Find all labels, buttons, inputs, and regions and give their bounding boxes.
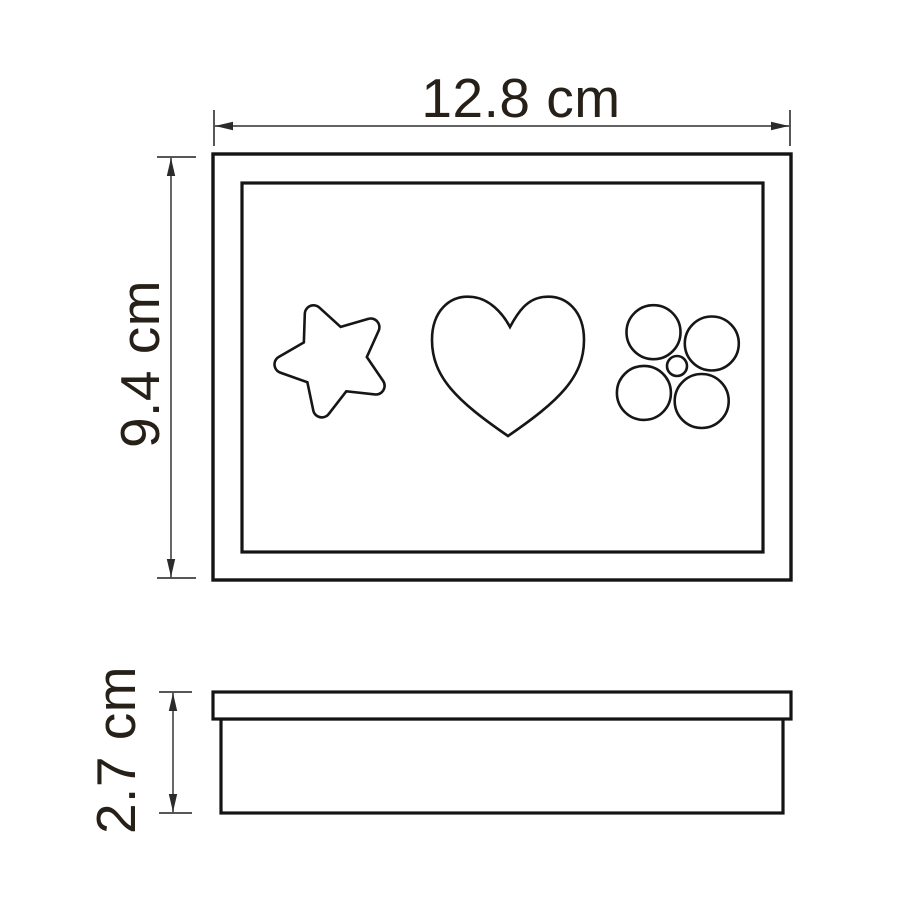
depth-dimension: 2.7 cm bbox=[85, 666, 192, 834]
technical-drawing-page: 12.8 cm 9.4 cm 2.7 cm bbox=[0, 0, 900, 900]
width-dimension: 12.8 cm bbox=[214, 67, 790, 146]
arrow-down-icon bbox=[169, 794, 177, 812]
dimension-diagram: 12.8 cm 9.4 cm 2.7 cm bbox=[0, 0, 900, 900]
depth-dimension-label: 2.7 cm bbox=[85, 666, 147, 834]
arrow-up-icon bbox=[167, 158, 175, 176]
flower-petal-top-fill bbox=[628, 307, 679, 358]
side-view-lid bbox=[213, 692, 791, 719]
flower-center-hole bbox=[667, 356, 687, 376]
arrow-up-icon bbox=[169, 693, 177, 711]
flower-petal-right-fill bbox=[686, 318, 737, 369]
top-view bbox=[213, 154, 791, 580]
arrow-right-icon bbox=[771, 122, 789, 130]
side-view bbox=[213, 692, 791, 813]
flower-petal-left-fill bbox=[619, 368, 670, 419]
flower-icon bbox=[617, 305, 739, 428]
flower-petal-bottom-fill bbox=[676, 376, 727, 427]
height-dimension-label: 9.4 cm bbox=[109, 280, 171, 448]
arrow-down-icon bbox=[167, 559, 175, 577]
height-dimension: 9.4 cm bbox=[109, 157, 196, 578]
arrow-left-icon bbox=[215, 122, 233, 130]
width-dimension-label: 12.8 cm bbox=[421, 67, 620, 129]
side-view-body bbox=[221, 719, 783, 813]
